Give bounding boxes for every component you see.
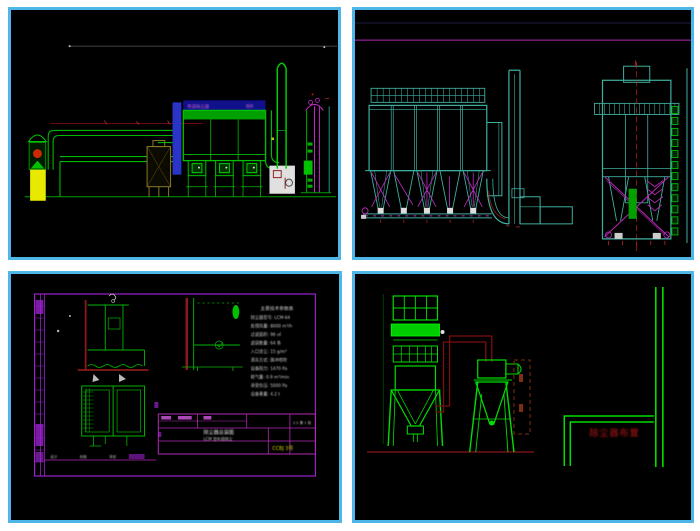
red-label: 除尘器布置 — [589, 427, 639, 439]
cyclone-hopper — [470, 360, 521, 452]
header-label-right: 图例 — [246, 103, 254, 108]
baghouse-side-view — [594, 60, 679, 251]
svg-text:承受负压: 5000 Pa: 承受负压: 5000 Pa — [251, 382, 288, 389]
dashed-outline — [514, 360, 530, 434]
detail-sheet-drawing: 主要技术参数表 除尘器型号: LCM-64 处理风量: 8000 m³/h 过滤… — [11, 274, 339, 520]
duct-run — [435, 336, 491, 412]
cad-preview-collage: 布袋除尘器 图例 — [0, 0, 700, 531]
stack — [277, 63, 286, 168]
l-duct — [564, 416, 654, 466]
drawing-subtitle: LCM 型布袋除尘 — [203, 436, 232, 441]
svg-text:审定: 审定 — [109, 454, 116, 459]
panel-baghouse-elevations[interactable] — [352, 7, 694, 260]
sheet-info: 1:1 第 1 张 — [293, 420, 312, 425]
inlet-band — [173, 102, 182, 174]
header-band: 布袋除尘器 图例 — [183, 100, 265, 110]
svg-text:入口含尘: 15 g/m³: 入口含尘: 15 g/m³ — [251, 348, 287, 355]
view-b — [182, 298, 243, 371]
baghouse-body — [183, 110, 265, 160]
svg-text:设备重量: 4.2 t: 设备重量: 4.2 t — [251, 390, 281, 397]
drawing-name: 除尘器总装图 — [203, 428, 234, 436]
dust-collector-tower — [383, 294, 444, 446]
access-ladder — [672, 106, 678, 235]
flare-silo — [29, 135, 47, 201]
feeder-tank — [147, 141, 170, 197]
baghouse-elevation-drawing — [355, 10, 691, 257]
svg-text:滤袋数量: 64 条: 滤袋数量: 64 条 — [251, 339, 282, 346]
svg-text:过滤面积: 96 ㎡: 过滤面积: 96 ㎡ — [251, 331, 282, 338]
process-line-drawing: 布袋除尘器 图例 — [11, 10, 338, 257]
panel-process-line-elevation[interactable]: 布袋除尘器 图例 — [8, 7, 341, 260]
svg-text:除尘器型号: LCM-64: 除尘器型号: LCM-64 — [251, 314, 291, 321]
spec-table: 主要技术参数表 除尘器型号: LCM-64 处理风量: 8000 m³/h 过滤… — [251, 305, 294, 398]
view-a — [57, 294, 149, 370]
svg-text:耗气量: 0.9 m³/min: 耗气量: 0.9 m³/min — [251, 373, 290, 380]
stack-lines — [656, 287, 663, 467]
spec-title: 主要技术参数表 — [260, 305, 293, 312]
view-c — [82, 374, 162, 446]
svg-text:清灰方式: 脉冲喷吹: 清灰方式: 脉冲喷吹 — [251, 356, 288, 363]
panel-detail-sheet[interactable]: 主要技术参数表 除尘器型号: LCM-64 处理风量: 8000 m³/h 过滤… — [8, 271, 342, 523]
svg-text:设计: 设计 — [50, 454, 57, 459]
svg-text:处理风量: 8000 m³/h: 处理风量: 8000 m³/h — [251, 322, 293, 329]
title-block — [44, 414, 315, 460]
svg-text:校核: 校核 — [80, 454, 87, 459]
pulse-hoppers — [186, 161, 262, 197]
stamp-number: CCBJ 3号 — [272, 446, 293, 452]
baghouse-front-view — [361, 88, 502, 223]
svg-text:设备阻力: 1470 Pa: 设备阻力: 1470 Pa — [251, 365, 288, 372]
elevator-structure — [301, 93, 331, 192]
collector-stack-drawing: 除尘器布置 — [355, 274, 691, 520]
outlet-duct-fan — [266, 110, 295, 193]
panel-collector-stack-elevation[interactable]: 除尘器布置 — [352, 271, 694, 523]
header-label: 布袋除尘器 — [187, 103, 210, 110]
stack-side-view — [487, 70, 573, 227]
